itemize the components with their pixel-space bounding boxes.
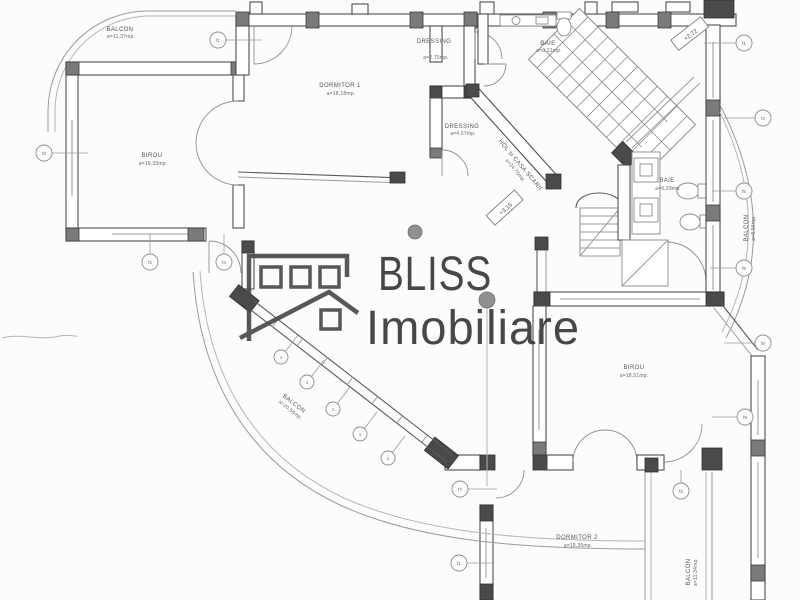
door-swing — [442, 150, 468, 176]
scan-smudge — [2, 335, 78, 338]
door-swing — [573, 430, 605, 462]
svg-text:f7: f7 — [458, 487, 462, 492]
door-swing — [668, 242, 706, 282]
svg-text:f2: f2 — [679, 489, 683, 494]
svg-text:1: 1 — [387, 456, 390, 461]
svg-text:f4: f4 — [222, 260, 226, 265]
svg-text:DORMITOR 2: DORMITOR 2 — [556, 535, 598, 541]
svg-text:f9: f9 — [743, 415, 747, 420]
svg-text:a=18,18mp.: a=18,18mp. — [327, 91, 356, 97]
svg-text:a=11,37mp.: a=11,37mp. — [107, 34, 135, 40]
dressing-walls — [430, 26, 502, 176]
room-birou-left-walls — [66, 62, 244, 273]
door-swing — [664, 424, 702, 462]
column-dot — [408, 225, 422, 239]
window-marker: f2 — [724, 110, 771, 126]
bliss-watermark: BLISS Imobiliare — [240, 248, 580, 355]
glazing-marker: 1 — [326, 387, 350, 416]
main-staircase — [529, 9, 696, 176]
glazing-marker: 1 — [381, 436, 405, 465]
svg-text:BAIE: BAIE — [540, 41, 555, 47]
door-swing — [484, 64, 506, 86]
svg-text:BALCON: BALCON — [744, 214, 750, 241]
svg-text:a=2,75mp.: a=2,75mp. — [423, 55, 449, 61]
door-swing — [496, 470, 524, 498]
toilet-icon — [557, 18, 571, 36]
door-swing — [605, 430, 637, 462]
glazing-marker: 1 — [274, 335, 298, 364]
sink-icon — [512, 17, 520, 25]
window-marker: f4 — [216, 234, 232, 270]
svg-text:BALCON: BALCON — [686, 558, 692, 585]
svg-text:a=11,34mp.: a=11,34mp. — [693, 558, 699, 586]
brand-name: BLISS — [378, 248, 492, 301]
svg-text:1: 1 — [280, 355, 283, 360]
secondary-stair — [576, 193, 622, 256]
svg-text:a=4,57mp.: a=4,57mp. — [450, 131, 476, 137]
room-dormitor1-walls — [236, 26, 405, 183]
glazing-marker: 1 — [353, 412, 377, 441]
svg-text:1: 1 — [359, 432, 362, 437]
room-label-balcon-diag: BALCONa=20,56mp. — [277, 394, 308, 422]
svg-text:f5: f5 — [742, 189, 746, 194]
svg-text:f8: f8 — [761, 341, 765, 346]
floor-plan-drawing: BALCONa=11,37mp. DORMITOR 1a=18,18mp. DR… — [0, 0, 800, 600]
bidet-icon — [680, 214, 700, 230]
room-label-balcon-right: BALCONa=8,56mp. — [744, 214, 757, 241]
window-marker: f9 — [712, 409, 753, 425]
window-marker: f3 — [36, 145, 88, 161]
room-label-dormitor1: DORMITOR 1a=18,18mp. — [319, 83, 361, 97]
floor-plan-scan: BALCONa=11,37mp. DORMITOR 1a=18,18mp. DR… — [0, 0, 800, 600]
right-wall — [706, 25, 754, 338]
svg-text:f2: f2 — [761, 116, 765, 121]
svg-text:f1: f1 — [457, 561, 461, 566]
room-label-dormitor2: DORMITOR 2a=19,35mp. — [556, 535, 598, 549]
svg-text:DORMITOR 1: DORMITOR 1 — [319, 83, 361, 89]
glazing-marker: 1 — [300, 360, 324, 389]
svg-text:BIROU: BIROU — [141, 153, 162, 159]
svg-text:a=8,56mp.: a=8,56mp. — [751, 215, 757, 241]
svg-text:f2: f2 — [148, 260, 152, 265]
brand-subname: Imobiliare — [366, 302, 580, 355]
room-label-birou-left: BIROUa=19,33mp. — [139, 153, 168, 167]
door-swing — [254, 26, 292, 64]
svg-text:f1: f1 — [216, 38, 220, 43]
room-dormitor2-walls — [445, 455, 524, 600]
room-label-balcon-brv: BALCONa=11,34mp. — [686, 558, 699, 586]
svg-text:1: 1 — [306, 380, 309, 385]
svg-text:1: 1 — [332, 407, 335, 412]
svg-text:f3: f3 — [42, 151, 46, 156]
svg-text:BALCON: BALCON — [106, 27, 133, 33]
svg-text:a=8,21mp.: a=8,21mp. — [536, 48, 562, 54]
svg-text:a=18,51mp.: a=18,51mp. — [620, 373, 649, 379]
door-swing — [196, 101, 238, 143]
svg-text:DRESSING: DRESSING — [417, 39, 452, 45]
svg-text:a=6,29mp.: a=6,29mp. — [655, 186, 681, 192]
svg-text:DRESSING: DRESSING — [445, 124, 480, 130]
room-label-birou-br: BIROUa=18,51mp. — [620, 365, 649, 379]
level-marker-315: +3,15 — [486, 190, 523, 225]
balcony-bottom-right — [645, 458, 712, 600]
svg-text:BIROU: BIROU — [623, 365, 644, 371]
room-label-dressing2: DRESSINGa=4,57mp. — [445, 124, 480, 137]
svg-text:a=19,35mp.: a=19,35mp. — [564, 543, 593, 549]
svg-text:BAIE: BAIE — [659, 178, 674, 184]
svg-text:f1: f1 — [742, 41, 746, 46]
window-marker: f7 — [452, 481, 497, 497]
door-swing — [196, 143, 238, 185]
window-marker: f2 — [673, 470, 689, 499]
svg-text:f6: f6 — [742, 266, 746, 271]
bliss-house-logo-icon — [240, 256, 358, 341]
svg-text:a=19,33mp.: a=19,33mp. — [139, 161, 168, 167]
room-label-balcon-top: BALCONa=11,37mp. — [106, 27, 135, 40]
